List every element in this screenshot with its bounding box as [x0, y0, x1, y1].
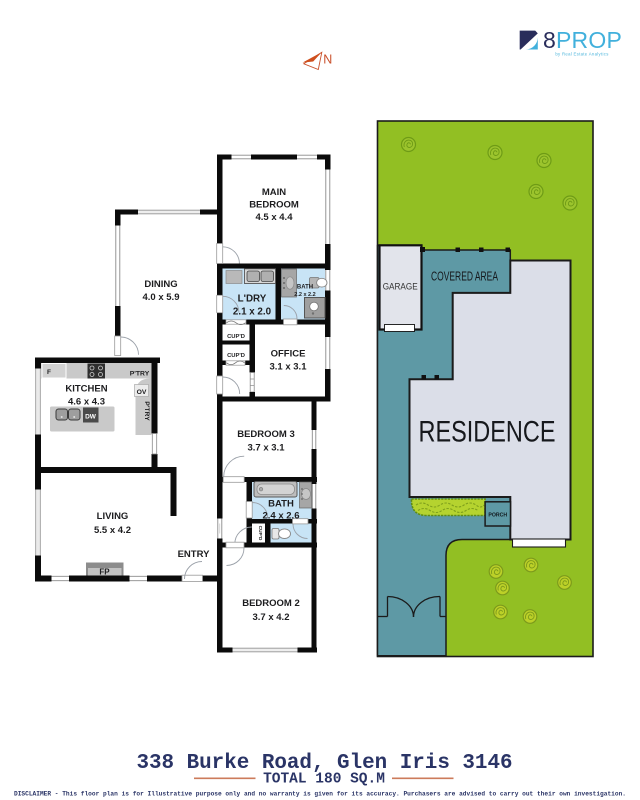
svg-text:BEDROOM 3: BEDROOM 3 [237, 429, 295, 440]
svg-text:4.0 x 5.9: 4.0 x 5.9 [143, 292, 180, 303]
svg-text:3.7 x 4.2: 3.7 x 4.2 [253, 612, 290, 623]
svg-text:BATH: BATH [297, 285, 313, 291]
svg-text:CUP'D: CUP'D [257, 526, 263, 541]
svg-text:8PROP: 8PROP [543, 27, 622, 53]
svg-text:L'DRY: L'DRY [238, 294, 267, 305]
svg-text:CUP'D: CUP'D [227, 334, 245, 340]
svg-text:4.6 x 4.3: 4.6 x 4.3 [68, 397, 105, 408]
svg-text:PORCH: PORCH [488, 513, 507, 519]
svg-text:DINING: DINING [144, 279, 177, 290]
svg-text:ENTRY: ENTRY [178, 549, 211, 560]
svg-text:2.2 x 2.2: 2.2 x 2.2 [294, 292, 315, 298]
svg-text:GARAGE: GARAGE [383, 282, 418, 292]
svg-text:P'TRY: P'TRY [143, 401, 150, 421]
svg-text:N: N [323, 52, 332, 66]
svg-text:OV: OV [137, 389, 147, 396]
svg-text:BATH: BATH [268, 499, 294, 510]
svg-text:KITCHEN: KITCHEN [65, 384, 107, 395]
svg-text:5.5 x 4.2: 5.5 x 4.2 [94, 525, 131, 536]
svg-text:MAIN: MAIN [262, 187, 286, 198]
svg-text:TOTAL 180 SQ.M: TOTAL 180 SQ.M [263, 772, 385, 788]
svg-text:COVERED AREA: COVERED AREA [431, 270, 498, 284]
svg-text:OFFICE: OFFICE [271, 349, 306, 360]
svg-text:3.7 x 3.1: 3.7 x 3.1 [248, 443, 286, 454]
svg-text:DISCLAIMER - This floor plan i: DISCLAIMER - This floor plan is for Illu… [14, 791, 626, 798]
svg-text:CUP'D: CUP'D [227, 353, 245, 359]
svg-text:4.5 x 4.4: 4.5 x 4.4 [256, 212, 294, 223]
svg-text:LIVING: LIVING [97, 511, 129, 522]
svg-text:BEDROOM: BEDROOM [249, 200, 299, 211]
svg-text:2.1 x 2.0: 2.1 x 2.0 [233, 307, 272, 318]
svg-text:FP: FP [99, 568, 110, 577]
svg-text:DW: DW [85, 414, 97, 421]
svg-text:by Real Estate Analytics: by Real Estate Analytics [555, 52, 608, 57]
svg-text:3.1 x 3.1: 3.1 x 3.1 [270, 362, 308, 373]
svg-text:F: F [47, 369, 51, 376]
svg-text:2.4 x 2.6: 2.4 x 2.6 [263, 511, 300, 522]
svg-text:RESIDENCE: RESIDENCE [419, 416, 556, 449]
svg-text:BEDROOM 2: BEDROOM 2 [242, 598, 300, 609]
svg-text:P'TRY: P'TRY [130, 371, 150, 378]
